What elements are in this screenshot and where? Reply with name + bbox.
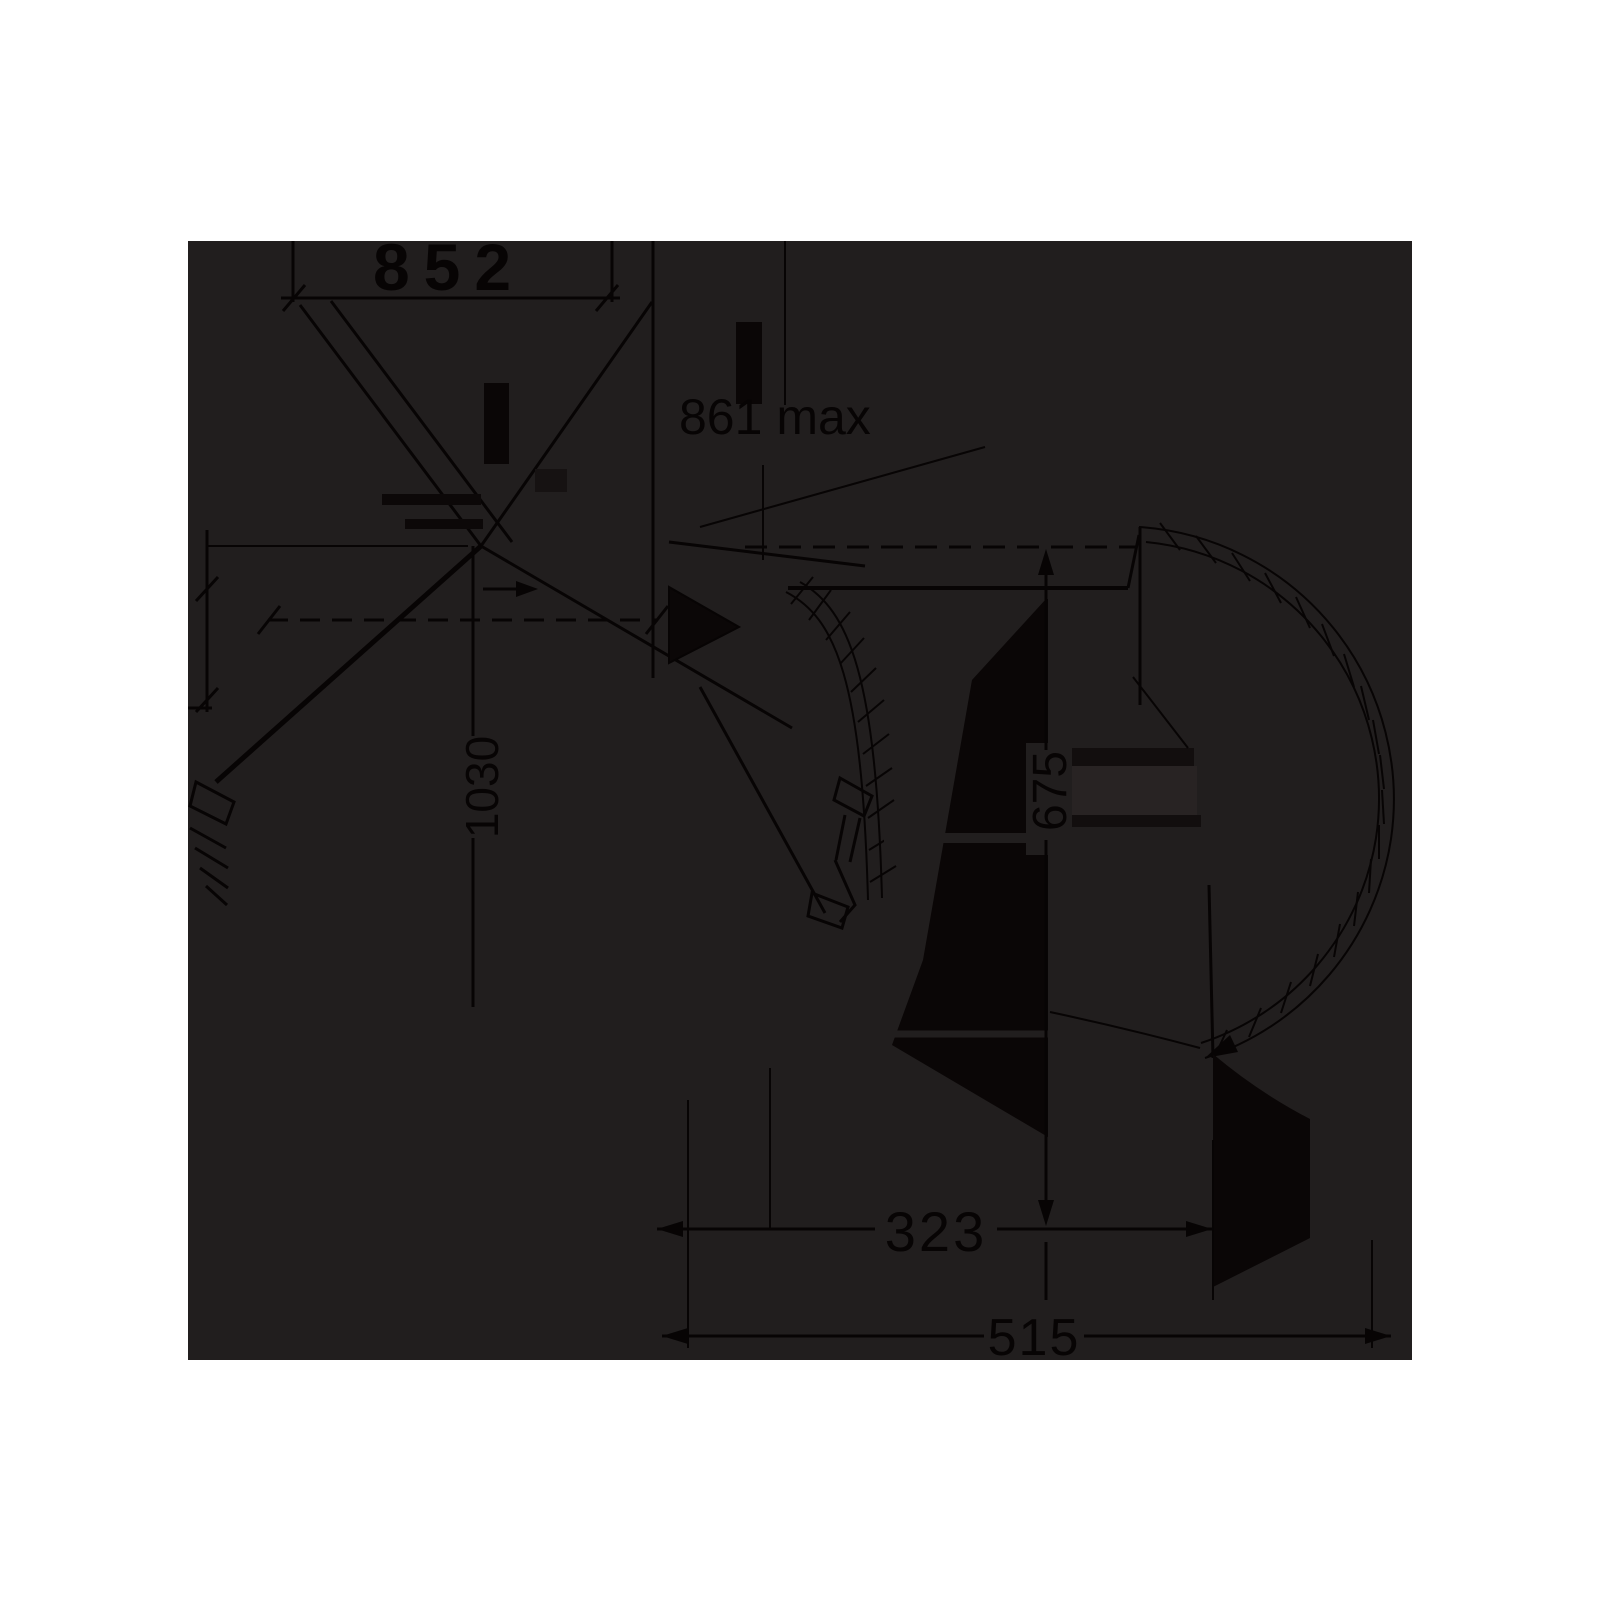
svg-text:515: 515 <box>988 1309 1081 1367</box>
svg-text:852: 852 <box>373 230 525 304</box>
svg-text:323: 323 <box>885 1200 987 1263</box>
svg-text:675: 675 <box>1024 751 1077 831</box>
svg-text:1030: 1030 <box>456 736 508 838</box>
svg-text:861 max: 861 max <box>679 389 871 445</box>
